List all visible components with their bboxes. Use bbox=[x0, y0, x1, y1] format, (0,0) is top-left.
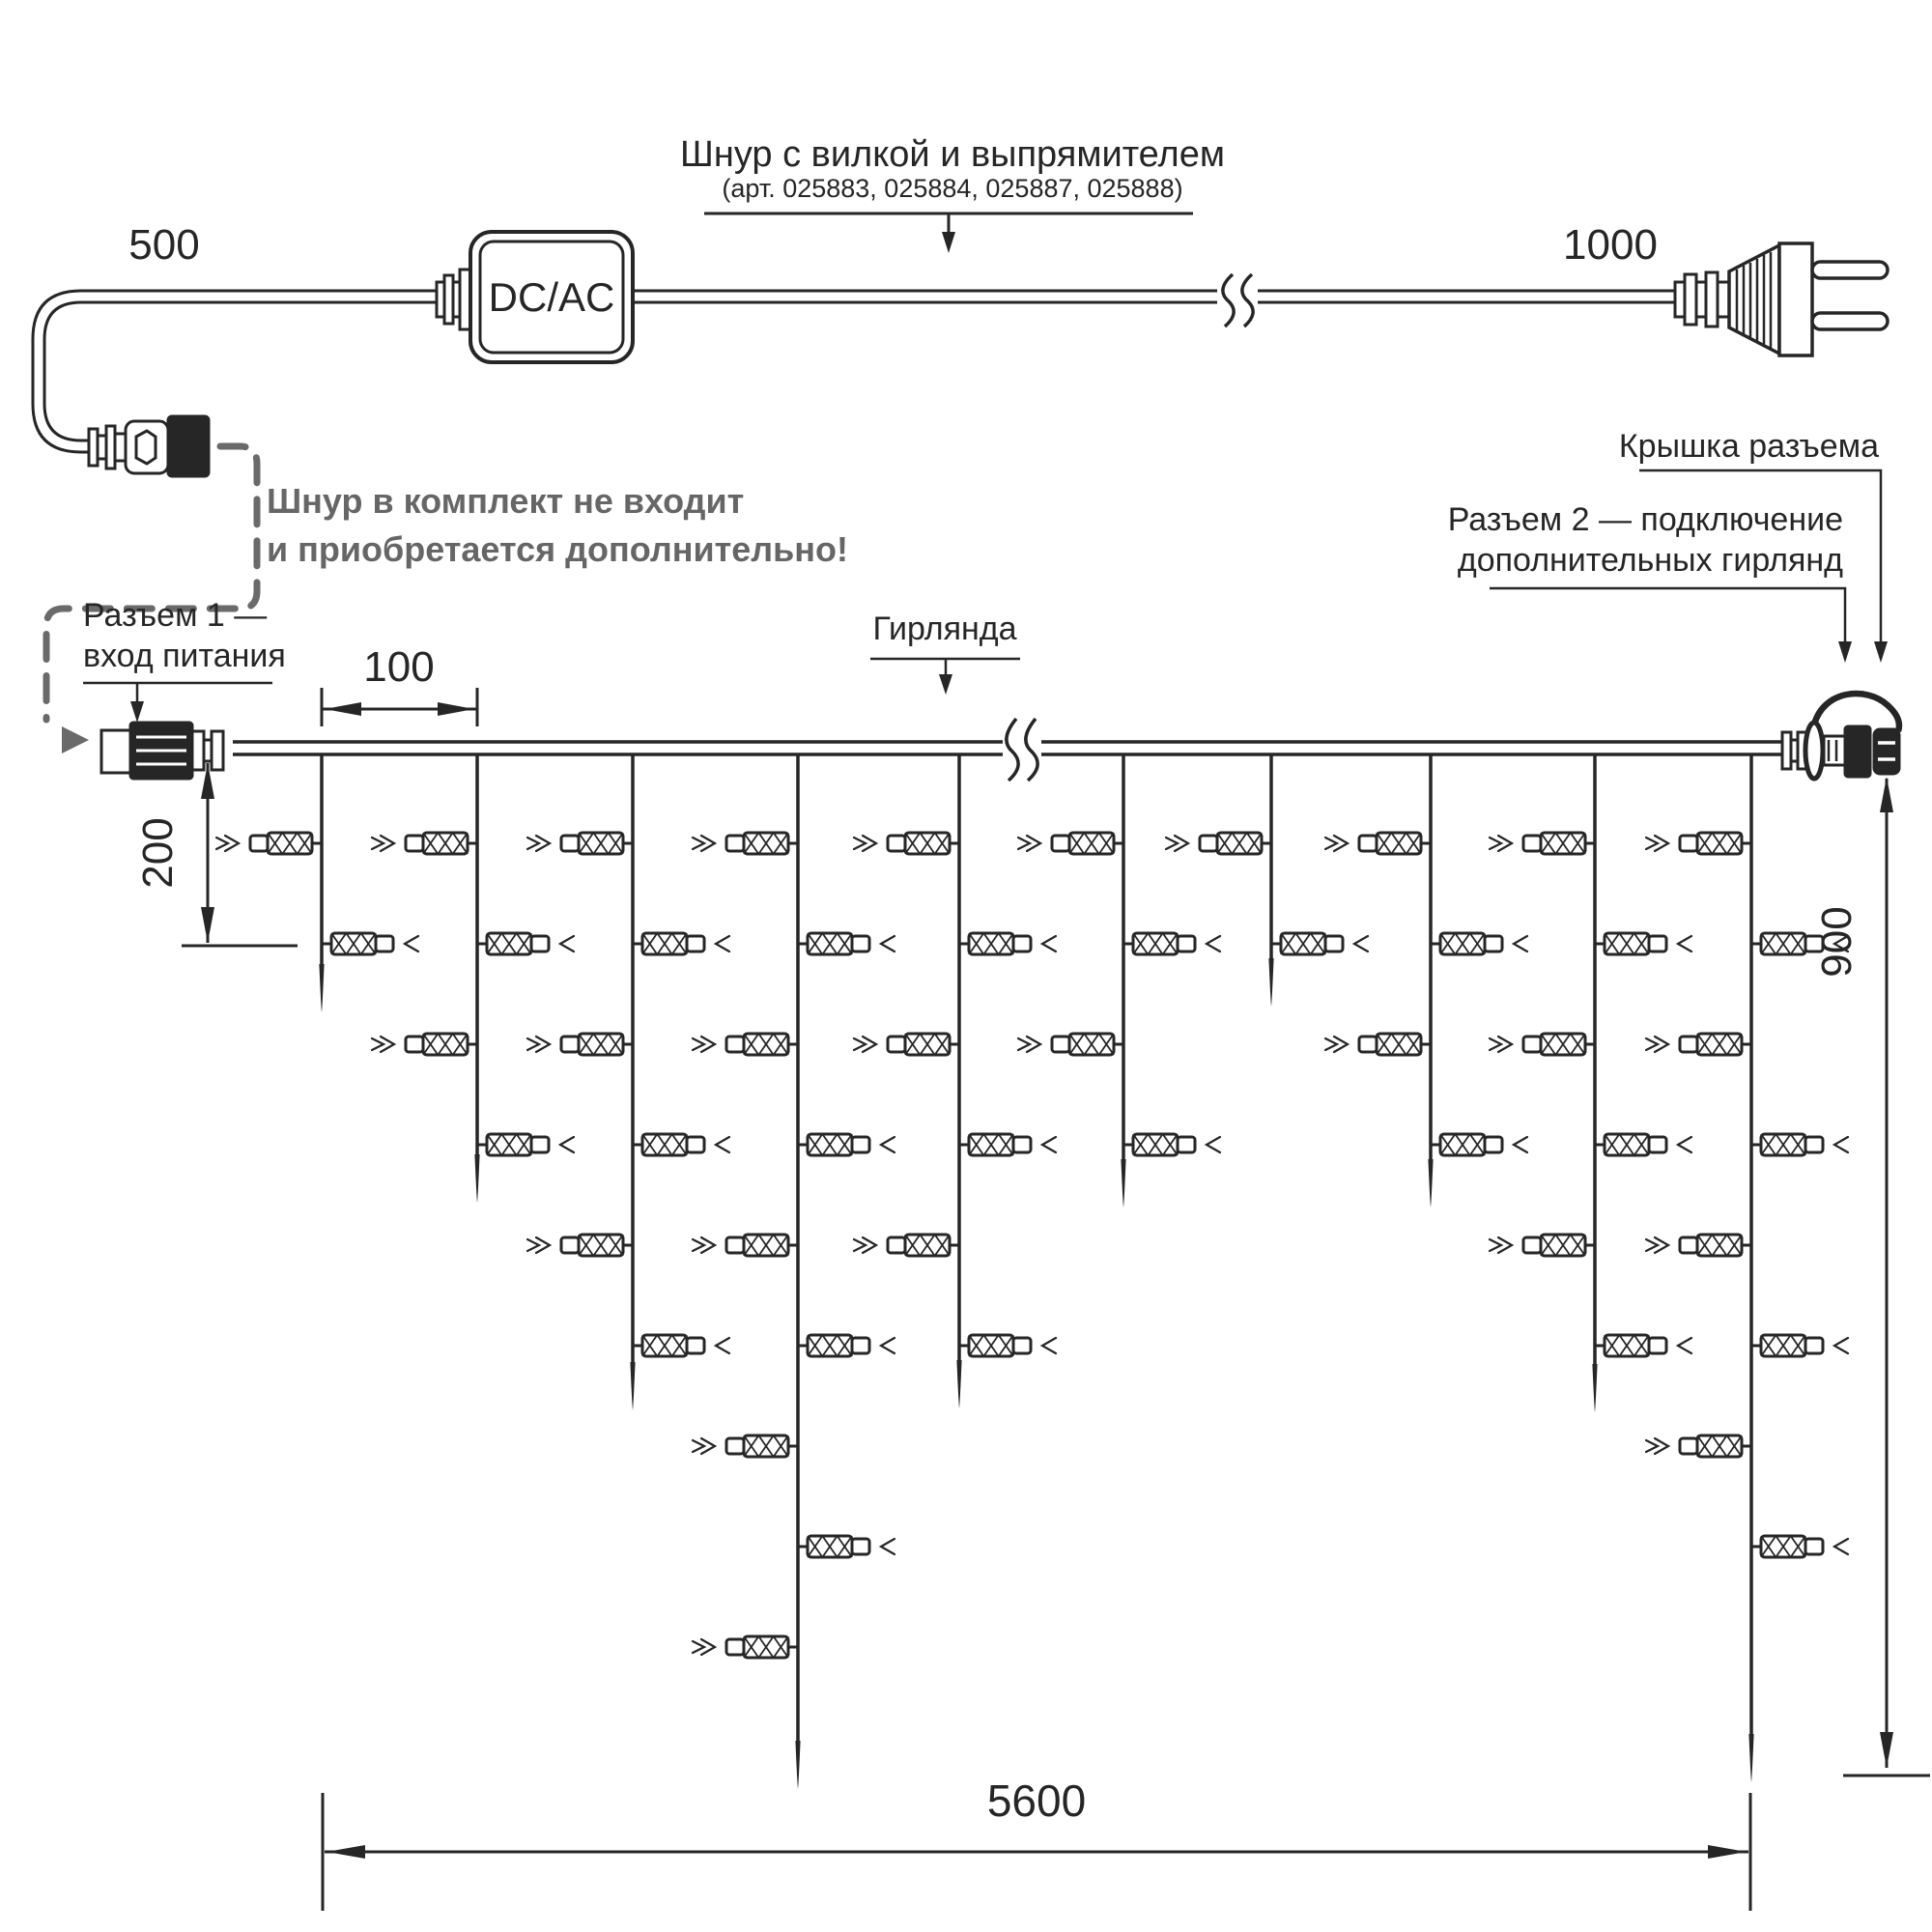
light-rays-icon bbox=[854, 1038, 866, 1050]
bulb-icon bbox=[693, 1435, 798, 1457]
light-rays-icon bbox=[716, 936, 729, 952]
light-rays-icon bbox=[693, 1641, 704, 1653]
drop-wire bbox=[527, 754, 729, 1410]
bulb-icon bbox=[1018, 833, 1123, 854]
dim-5600-label: 5600 bbox=[987, 1776, 1086, 1826]
drop-wire bbox=[1166, 754, 1368, 1007]
light-rays-icon bbox=[1514, 1137, 1527, 1152]
light-rays-icon bbox=[1018, 838, 1030, 849]
wire-tip-icon bbox=[319, 964, 324, 1012]
bulb-icon bbox=[527, 833, 633, 854]
bulb-icon bbox=[959, 1335, 1056, 1356]
cord-cable-right-b bbox=[1258, 291, 1675, 302]
light-rays-icon bbox=[1646, 838, 1658, 849]
dim-900-label: 900 bbox=[1813, 906, 1861, 977]
down-arrow-icon bbox=[1874, 641, 1888, 663]
cord-note-line2: (арт. 025883, 025884, 025887, 025888) bbox=[722, 174, 1182, 203]
bulb-icon bbox=[1595, 1335, 1691, 1356]
bulb-icon bbox=[798, 1536, 895, 1557]
light-rays-icon bbox=[560, 1137, 574, 1152]
light-rays-icon bbox=[1646, 1440, 1658, 1452]
light-rays-icon bbox=[1166, 838, 1178, 849]
drop-wire bbox=[216, 754, 418, 1012]
bulb-icon bbox=[693, 833, 798, 854]
bulb-icon bbox=[693, 1034, 798, 1055]
dc-ac-converter: DC/AC bbox=[470, 232, 633, 362]
light-rays-icon bbox=[1678, 1338, 1691, 1353]
bulb-icon bbox=[798, 1134, 895, 1155]
cord-output-connector-icon bbox=[89, 416, 209, 476]
down-arrow-icon bbox=[130, 701, 144, 723]
diagram-page: DC/AC Шнур с вилкой и выпрямителем (арт.… bbox=[0, 0, 1932, 1932]
down-arrow-icon bbox=[942, 232, 955, 253]
bulb-icon bbox=[477, 1134, 574, 1155]
not-included-line2: и приобретается дополнительно! bbox=[267, 529, 848, 569]
light-rays-icon bbox=[1834, 1137, 1848, 1152]
bulb-icon bbox=[216, 833, 322, 854]
light-rays-icon bbox=[1042, 1137, 1056, 1152]
power-plug-icon bbox=[1675, 243, 1888, 355]
dc-ac-label: DC/AC bbox=[489, 274, 615, 320]
gray-arrow-icon bbox=[62, 726, 89, 753]
dim-100-label: 100 bbox=[363, 643, 434, 691]
bulb-icon bbox=[1646, 1435, 1751, 1457]
drop-wire bbox=[1325, 754, 1527, 1207]
garland-label: Гирлянда bbox=[870, 611, 1020, 695]
wire-tip-icon bbox=[1428, 1159, 1433, 1207]
bulb-icon bbox=[798, 933, 895, 954]
bulb-icon bbox=[372, 833, 477, 854]
light-rays-icon bbox=[1646, 1038, 1658, 1050]
light-rays-icon bbox=[1018, 1038, 1030, 1050]
bulb-icon bbox=[372, 1034, 477, 1055]
light-rays-icon bbox=[1325, 838, 1337, 849]
light-rays-icon bbox=[1490, 1239, 1501, 1251]
bulb-icon bbox=[1123, 933, 1220, 954]
light-rays-icon bbox=[372, 838, 384, 849]
connector2-label: Разъем 2 — подключение дополнительных ги… bbox=[1448, 501, 1852, 663]
light-rays-icon bbox=[560, 936, 574, 952]
power-cord-assembly bbox=[33, 274, 1675, 452]
wire-tip-icon bbox=[956, 1360, 961, 1408]
wire-tip-icon bbox=[630, 1362, 635, 1410]
light-rays-icon bbox=[854, 1239, 866, 1251]
dim-900: 900 bbox=[1813, 777, 1930, 1776]
bulb-icon bbox=[477, 933, 574, 954]
bulb-icon bbox=[633, 1335, 729, 1356]
wire-tip-icon bbox=[1268, 958, 1273, 1007]
dim-1000-label: 1000 bbox=[1563, 221, 1658, 269]
light-rays-icon bbox=[1834, 1338, 1848, 1353]
garland-input-connector-icon bbox=[101, 723, 223, 779]
bulb-icon bbox=[1166, 833, 1271, 854]
connector2-line2: дополнительных гирлянд bbox=[1458, 542, 1843, 579]
connector2-line1: Разъем 2 — подключение bbox=[1448, 501, 1843, 538]
light-rays-icon bbox=[693, 838, 704, 849]
drop-wire bbox=[1490, 754, 1691, 1412]
bulb-icon bbox=[693, 1636, 798, 1658]
wire-tip-icon bbox=[1748, 1734, 1753, 1782]
cap-title: Крышка разъема bbox=[1619, 428, 1879, 465]
cable-break-icon bbox=[1007, 719, 1037, 781]
dim-5600: 5600 bbox=[323, 1776, 1750, 1911]
light-rays-icon bbox=[693, 1239, 704, 1251]
bulb-icon bbox=[854, 1034, 959, 1055]
light-rays-icon bbox=[1490, 1038, 1501, 1050]
light-rays-icon bbox=[1207, 1137, 1220, 1152]
light-rays-icon bbox=[1042, 1338, 1056, 1353]
cord-cable-right-a bbox=[633, 291, 1217, 302]
cord-cable-left-inner bbox=[44, 302, 440, 440]
light-rays-icon bbox=[216, 838, 228, 849]
bulb-icon bbox=[1595, 1134, 1691, 1155]
light-rays-icon bbox=[1207, 936, 1220, 952]
connector1-line2: вход питания bbox=[83, 638, 286, 674]
dim-500-label: 500 bbox=[128, 221, 199, 269]
cord-note-line1: Шнур с вилкой и выпрямителем bbox=[680, 134, 1225, 175]
light-rays-icon bbox=[1834, 1539, 1848, 1554]
bulb-icon bbox=[798, 1335, 895, 1356]
light-rays-icon bbox=[1646, 1239, 1658, 1251]
bulb-icon bbox=[633, 1134, 729, 1155]
connector1-label: Разъем 1 — вход питания bbox=[83, 597, 286, 723]
wire-tip-icon bbox=[1121, 1159, 1125, 1207]
light-rays-icon bbox=[1678, 1137, 1691, 1152]
bulb-icon bbox=[693, 1235, 798, 1256]
bulb-icon bbox=[959, 933, 1056, 954]
cable-break-icon bbox=[1223, 274, 1253, 327]
light-rays-icon bbox=[881, 1539, 895, 1554]
light-rays-icon bbox=[1325, 1038, 1337, 1050]
garland-drops bbox=[216, 754, 1848, 1789]
light-rays-icon bbox=[527, 1239, 539, 1251]
bulb-icon bbox=[1018, 1034, 1123, 1055]
down-arrow-icon bbox=[939, 674, 952, 695]
cord-note: Шнур с вилкой и выпрямителем (арт. 02588… bbox=[680, 134, 1225, 253]
bulb-icon bbox=[1271, 933, 1368, 954]
bulb-icon bbox=[1751, 1134, 1848, 1155]
wire-tip-icon bbox=[795, 1741, 800, 1789]
bulb-icon bbox=[854, 833, 959, 854]
bulb-icon bbox=[1431, 1134, 1527, 1155]
light-rays-icon bbox=[1354, 936, 1368, 952]
light-rays-icon bbox=[881, 1338, 895, 1353]
drop-wire bbox=[693, 754, 895, 1789]
bulb-icon bbox=[1490, 1235, 1595, 1256]
drop-wire bbox=[854, 754, 1056, 1408]
light-rays-icon bbox=[527, 1038, 539, 1050]
light-rays-icon bbox=[716, 1338, 729, 1353]
drop-wire bbox=[372, 754, 574, 1203]
drop-wire bbox=[1018, 754, 1220, 1207]
garland-end-connector-icon bbox=[1782, 694, 1899, 779]
box-strain-relief-icon bbox=[437, 270, 470, 329]
bulb-icon bbox=[854, 1235, 959, 1256]
bulb-icon bbox=[1751, 1335, 1848, 1356]
bulb-icon bbox=[1751, 1536, 1848, 1557]
light-rays-icon bbox=[716, 1137, 729, 1152]
dim-200-label: 200 bbox=[134, 817, 182, 888]
bulb-icon bbox=[1646, 1034, 1751, 1055]
wire-tip-icon bbox=[474, 1154, 479, 1203]
garland-wiring-diagram: DC/AC Шнур с вилкой и выпрямителем (арт.… bbox=[0, 0, 1932, 1932]
bulb-icon bbox=[1123, 1134, 1220, 1155]
light-rays-icon bbox=[405, 936, 418, 952]
dim-100: 100 bbox=[322, 643, 477, 726]
bulb-icon bbox=[1595, 933, 1691, 954]
bulb-icon bbox=[1431, 933, 1527, 954]
light-rays-icon bbox=[881, 1137, 895, 1152]
bulb-icon bbox=[633, 933, 729, 954]
light-rays-icon bbox=[854, 838, 866, 849]
bulb-icon bbox=[1646, 833, 1751, 854]
bulb-icon bbox=[322, 933, 418, 954]
garland-title: Гирлянда bbox=[872, 611, 1016, 647]
bulb-icon bbox=[527, 1034, 633, 1055]
light-rays-icon bbox=[372, 1038, 384, 1050]
not-included-line1: Шнур в комплект не входит bbox=[267, 481, 744, 521]
bulb-icon bbox=[1490, 833, 1595, 854]
bulb-icon bbox=[959, 1134, 1056, 1155]
light-rays-icon bbox=[1678, 936, 1691, 952]
garland-main-cable bbox=[233, 719, 1782, 781]
light-rays-icon bbox=[881, 936, 895, 952]
light-rays-icon bbox=[693, 1038, 704, 1050]
light-rays-icon bbox=[1042, 936, 1056, 952]
down-arrow-icon bbox=[1838, 641, 1852, 663]
bulb-icon bbox=[1325, 833, 1431, 854]
light-rays-icon bbox=[693, 1440, 704, 1452]
bulb-icon bbox=[1646, 1235, 1751, 1256]
wire-tip-icon bbox=[1592, 1364, 1597, 1412]
light-rays-icon bbox=[1514, 936, 1527, 952]
light-rays-icon bbox=[1490, 838, 1501, 849]
light-rays-icon bbox=[527, 838, 539, 849]
bulb-icon bbox=[527, 1235, 633, 1256]
connector1-line1: Разъем 1 — bbox=[83, 597, 267, 634]
bulb-icon bbox=[1325, 1034, 1431, 1055]
bulb-icon bbox=[1490, 1034, 1595, 1055]
